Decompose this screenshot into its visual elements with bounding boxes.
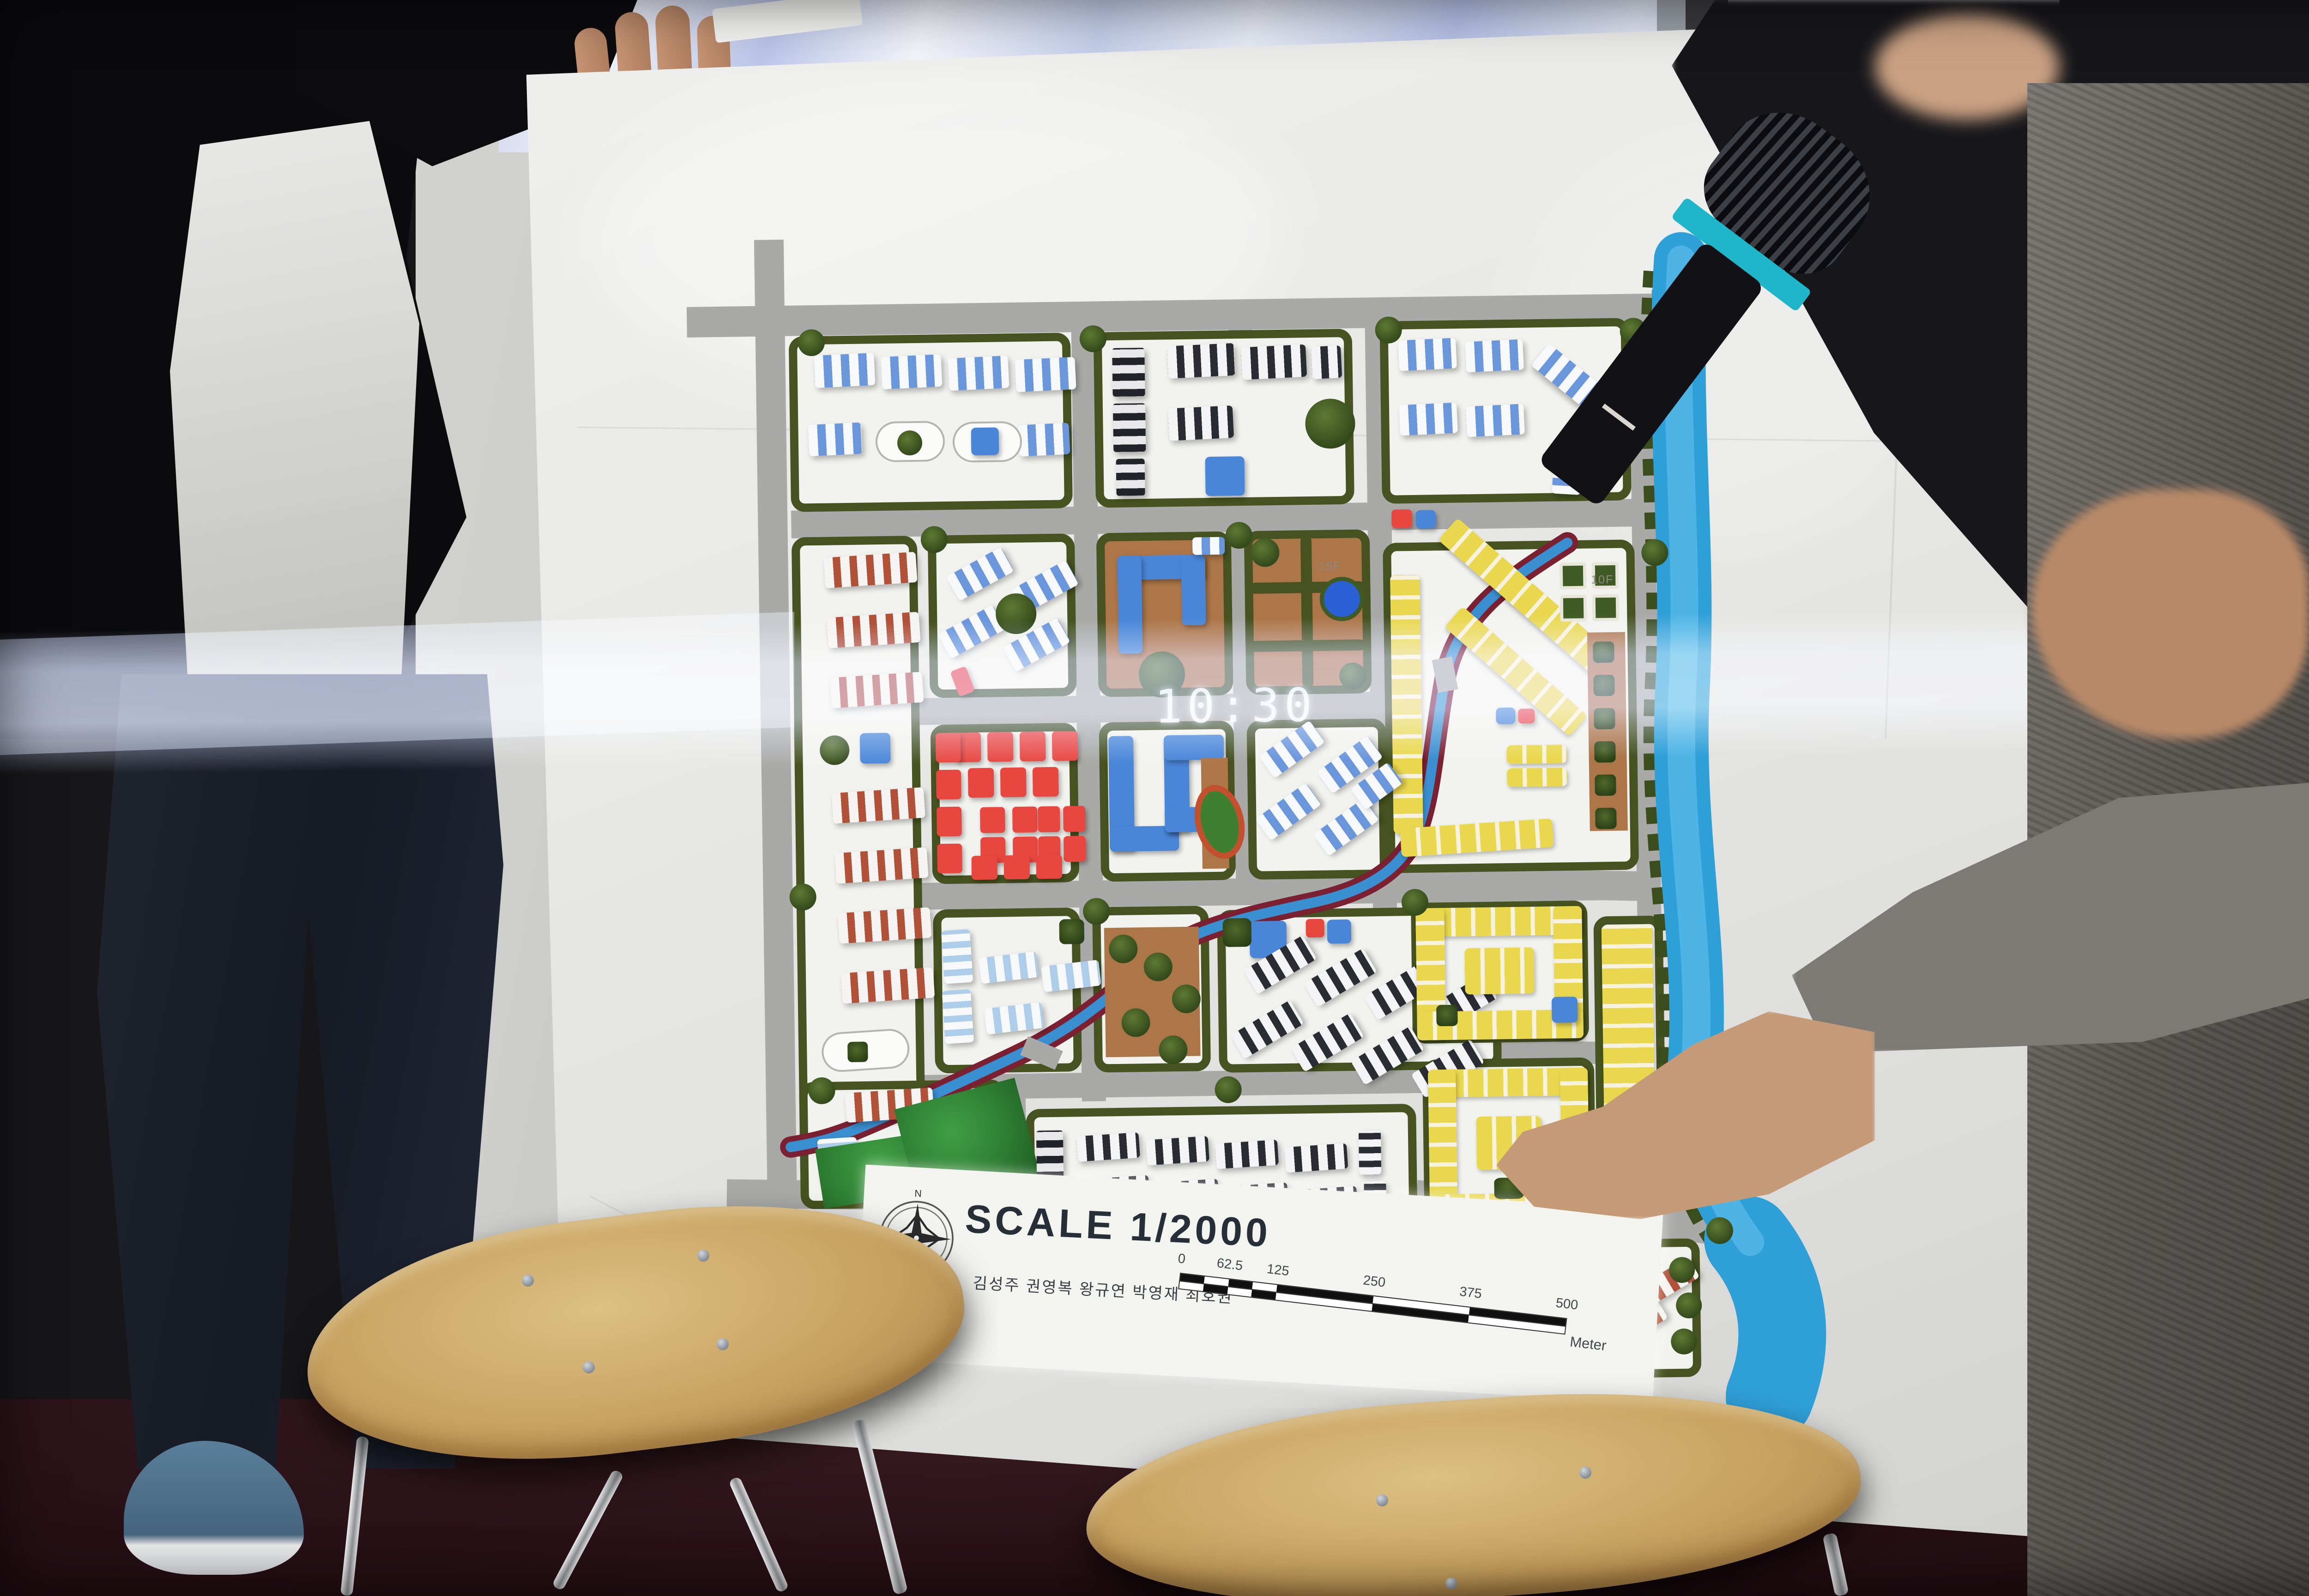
model-building [1215, 1140, 1279, 1169]
seat-screw [522, 1275, 534, 1287]
model-building [1255, 783, 1321, 841]
model-cube [1003, 855, 1030, 880]
floor-label: 15F [1318, 560, 1341, 574]
model-building [1018, 423, 1070, 456]
model-cube [971, 856, 997, 880]
scalebar-tick: 375 [1459, 1284, 1483, 1302]
scalebar-tick: 125 [1266, 1262, 1290, 1279]
photo-scene: 15F 10F N SCALE 1/2000 김성주 권영복 왕규연 박영재 최… [0, 0, 2309, 1596]
model-building [1146, 1136, 1209, 1166]
scalebar-unit: Meter [1569, 1333, 1608, 1354]
seat-screw [1579, 1467, 1591, 1479]
model-building [840, 967, 935, 1004]
yellow-housing-ring [1464, 947, 1534, 994]
model-tree [1215, 1076, 1242, 1103]
model-building [1192, 537, 1225, 555]
compass-north-label: N [914, 1188, 922, 1199]
model-building [984, 1002, 1045, 1034]
model-cube [1064, 836, 1086, 862]
model-garden [1559, 562, 1587, 590]
model-tree [1305, 399, 1355, 449]
model-building [1284, 1143, 1348, 1173]
model-running-track [1188, 780, 1251, 864]
model-cube [980, 807, 1005, 833]
seat-screw [583, 1361, 595, 1373]
model-tower [1112, 348, 1145, 397]
model-building [1041, 960, 1101, 992]
model-building [834, 847, 929, 884]
model-cube [1000, 768, 1027, 798]
model-building [831, 787, 925, 824]
model-building [814, 353, 875, 388]
model-cube [1038, 806, 1060, 833]
model-tree [808, 1077, 835, 1105]
scalebar-tick: 500 [1555, 1295, 1579, 1313]
model-building [941, 929, 973, 984]
model-cube [1327, 919, 1351, 944]
scalebar-tick: 250 [1362, 1273, 1386, 1290]
projected-clock: 10:30 [1154, 678, 1317, 734]
model-tree [921, 526, 948, 553]
model-building [946, 547, 1014, 601]
model-u-building [1181, 555, 1206, 625]
model-tower [1113, 403, 1146, 452]
model-tree [1706, 1217, 1734, 1244]
model-building [1398, 338, 1457, 371]
model-cube [937, 807, 962, 837]
scalebar-tick: 62.5 [1216, 1256, 1244, 1274]
model-tree [1375, 316, 1402, 344]
model-tree [1595, 808, 1617, 829]
model-tree [1251, 538, 1280, 567]
scalebar-tick: 0 [1177, 1251, 1186, 1267]
model-tree [1083, 898, 1110, 925]
model-cube [1063, 806, 1086, 832]
model-tree [1159, 1035, 1188, 1064]
model-tree [1222, 918, 1251, 947]
floor-label: 10F [1591, 573, 1614, 587]
yellow-housing-row [1507, 768, 1567, 787]
model-cube [937, 844, 962, 874]
model-cube [1036, 855, 1062, 879]
seat-screw [717, 1338, 729, 1350]
model-building [1076, 1132, 1140, 1162]
model-cube [1552, 997, 1578, 1023]
model-building [948, 356, 1009, 391]
model-building [1167, 343, 1235, 379]
model-building [838, 907, 932, 943]
model-cube [936, 770, 961, 800]
model-building [942, 989, 974, 1044]
model-tree [798, 329, 825, 357]
model-cube [1012, 806, 1038, 833]
model-tree [1595, 774, 1616, 796]
model-building [1168, 405, 1234, 441]
model-building [808, 423, 862, 457]
model-building [1241, 345, 1307, 380]
model-building [1465, 339, 1524, 372]
model-tree [1671, 1329, 1697, 1355]
model-cube [968, 768, 994, 798]
model-cube [1306, 919, 1324, 938]
model-tower [1116, 459, 1145, 496]
model-tree [1676, 1292, 1702, 1318]
model-building [979, 951, 1039, 984]
model-pond [1319, 576, 1364, 621]
model-car [1391, 509, 1412, 528]
model-tree [1436, 1005, 1458, 1027]
model-cube [1205, 456, 1245, 496]
seat-screw [1445, 1578, 1457, 1590]
model-tree [1059, 919, 1084, 944]
model-building [1399, 402, 1458, 435]
seat-screw [697, 1250, 709, 1262]
model-building [1311, 345, 1342, 379]
model-building [823, 552, 918, 588]
model-car [1415, 510, 1436, 529]
model-tower [1359, 1130, 1381, 1175]
model-cube [1033, 767, 1059, 797]
model-building [1015, 357, 1076, 392]
model-tree [789, 883, 816, 911]
model-tree [1641, 539, 1668, 566]
model-tree [1225, 522, 1252, 549]
seat-screw [1376, 1494, 1388, 1506]
model-tower [1036, 1130, 1064, 1179]
model-tree [847, 1042, 868, 1063]
model-cube [971, 427, 999, 455]
model-building [881, 354, 942, 389]
model-tree [1079, 325, 1106, 352]
